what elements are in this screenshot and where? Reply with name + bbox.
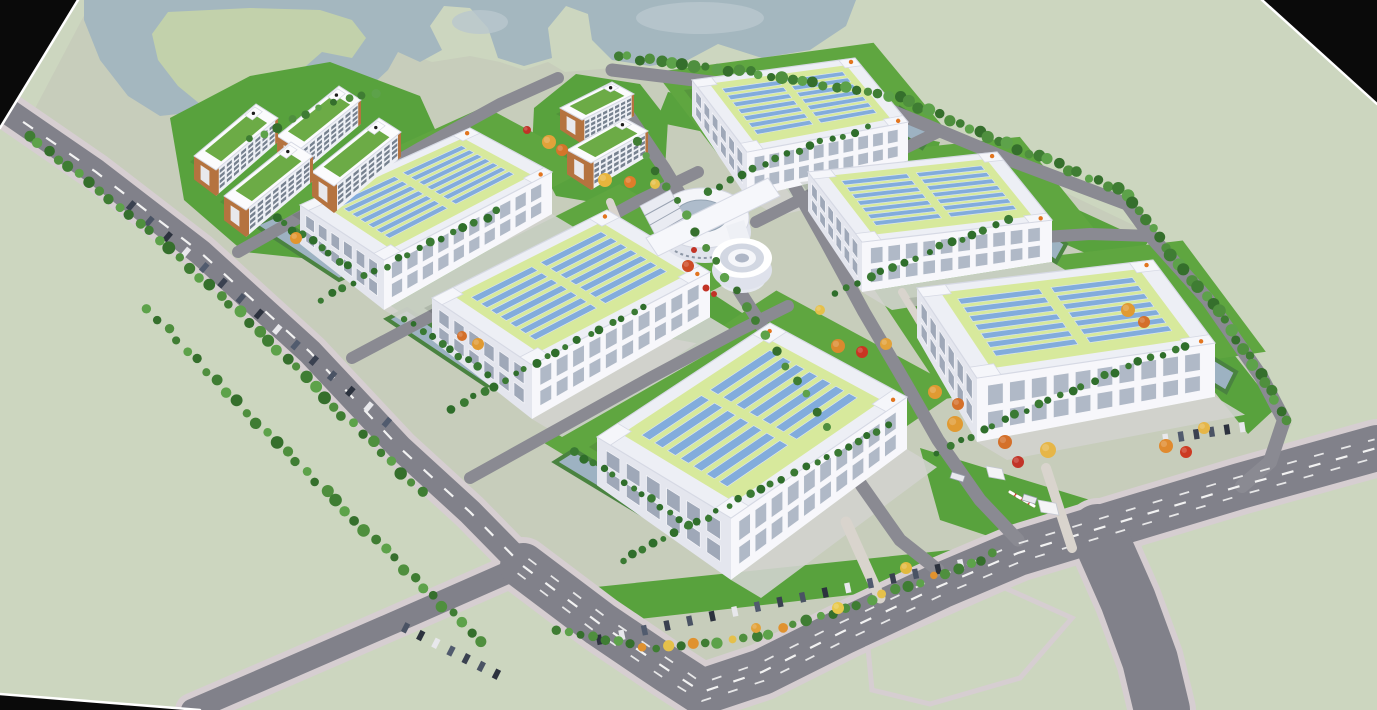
tree <box>325 250 332 257</box>
tree <box>1160 352 1167 359</box>
tree <box>877 589 886 598</box>
tree <box>438 236 445 243</box>
tree <box>890 584 900 594</box>
tree <box>601 465 608 472</box>
tree <box>303 467 312 476</box>
tree <box>1024 408 1030 414</box>
tree <box>103 194 113 204</box>
tree <box>292 362 300 370</box>
tree <box>262 335 274 347</box>
tree <box>336 411 346 421</box>
tree <box>328 289 336 297</box>
tree <box>727 503 733 509</box>
tree <box>864 88 872 96</box>
tree <box>387 456 396 465</box>
tree <box>1181 342 1190 351</box>
tree <box>756 485 765 494</box>
tree <box>492 207 500 215</box>
tree <box>552 626 561 635</box>
tree <box>900 259 908 267</box>
tree <box>867 595 877 605</box>
tree <box>766 480 773 487</box>
tree <box>417 245 423 251</box>
tree <box>956 119 965 128</box>
tree <box>136 219 146 229</box>
tree <box>767 73 775 81</box>
tree <box>489 383 498 392</box>
tree <box>271 436 284 449</box>
tree <box>863 432 870 439</box>
tree <box>1149 224 1157 232</box>
tree <box>751 316 760 325</box>
tree <box>418 583 428 593</box>
industrial-park-aerial-view <box>0 0 1377 710</box>
tree <box>720 273 729 282</box>
tree <box>656 56 668 68</box>
tree <box>394 467 406 479</box>
tree <box>912 103 923 114</box>
tree <box>95 186 104 195</box>
roof-accent <box>891 398 895 402</box>
tree <box>290 457 299 466</box>
tree <box>631 309 638 316</box>
tree <box>651 167 660 176</box>
tree <box>338 284 346 292</box>
tree <box>470 219 478 227</box>
tree <box>344 261 352 269</box>
tree <box>693 518 701 526</box>
tree <box>1035 400 1044 409</box>
tree <box>484 371 491 378</box>
tree <box>372 89 381 98</box>
tree <box>301 110 310 119</box>
tree <box>1077 383 1084 390</box>
tree <box>1002 415 1009 422</box>
tree <box>254 326 266 338</box>
tree <box>867 272 876 281</box>
tree <box>676 58 688 70</box>
tree <box>754 70 763 79</box>
roof-accent <box>603 214 607 218</box>
tree <box>273 213 282 222</box>
tree <box>502 377 509 384</box>
tree <box>246 135 253 142</box>
tree <box>458 223 467 232</box>
tree <box>601 635 611 645</box>
tree <box>688 638 699 649</box>
tree <box>371 535 381 545</box>
tree <box>1213 304 1226 317</box>
tree <box>968 434 975 441</box>
tree <box>481 387 490 396</box>
tree <box>283 354 294 365</box>
tree <box>903 95 915 107</box>
tree <box>712 257 720 265</box>
drum-ring <box>735 254 749 263</box>
tree <box>289 115 297 123</box>
tree <box>202 368 210 376</box>
tree <box>675 516 682 523</box>
tree <box>450 609 458 617</box>
tree <box>723 66 734 77</box>
tree <box>852 86 861 95</box>
tree <box>690 227 699 236</box>
tree <box>628 550 637 559</box>
tree <box>621 479 628 486</box>
tree <box>742 302 752 312</box>
tree <box>682 210 691 219</box>
tree <box>545 353 551 359</box>
tree <box>450 229 456 235</box>
tree <box>1001 137 1013 149</box>
tree <box>635 56 645 66</box>
roof-accent <box>538 172 542 176</box>
tree <box>595 326 604 335</box>
tree <box>771 155 779 163</box>
tree <box>1191 280 1204 293</box>
tree <box>662 182 671 191</box>
tree <box>318 298 324 304</box>
tree <box>360 272 367 279</box>
tree <box>1269 395 1279 405</box>
tree <box>935 242 943 250</box>
tree <box>235 305 247 317</box>
roof-accent <box>1199 339 1203 343</box>
tree <box>377 449 385 457</box>
site-plan-rendering <box>0 0 1377 710</box>
tree <box>165 324 174 333</box>
tree <box>551 349 560 358</box>
tree <box>1282 415 1292 425</box>
tree <box>411 573 420 582</box>
tree <box>310 478 319 487</box>
tree <box>797 76 807 86</box>
tree <box>243 409 251 417</box>
tree <box>684 521 693 530</box>
tree <box>823 423 831 431</box>
tree <box>854 280 861 287</box>
tree <box>940 569 950 579</box>
tree <box>62 161 73 172</box>
tree <box>701 62 709 70</box>
tree <box>781 363 789 371</box>
tree <box>656 504 663 511</box>
tree <box>802 463 810 471</box>
tree <box>263 428 272 437</box>
tree <box>716 183 723 190</box>
tree <box>609 319 616 326</box>
tree <box>817 138 823 144</box>
tree <box>855 438 863 446</box>
tree <box>565 628 573 636</box>
tree <box>579 455 588 464</box>
tree <box>261 131 269 139</box>
tree <box>1057 392 1064 399</box>
tree <box>609 471 615 477</box>
tree <box>318 391 331 404</box>
tree <box>738 171 747 180</box>
tree <box>319 244 326 251</box>
tree <box>309 236 318 245</box>
tree <box>300 371 312 383</box>
tree <box>777 476 785 484</box>
tree <box>1041 153 1052 164</box>
tree <box>625 639 634 648</box>
tree <box>1103 181 1113 191</box>
tree <box>702 244 710 252</box>
tree <box>967 559 976 568</box>
tree <box>734 65 745 76</box>
tree <box>800 615 812 627</box>
tree <box>429 333 436 340</box>
tree <box>339 506 349 516</box>
tree <box>184 263 195 274</box>
roof-accent <box>465 131 469 135</box>
tree <box>407 478 415 486</box>
tree <box>944 115 955 126</box>
tree <box>1054 158 1065 169</box>
tree <box>562 344 568 350</box>
tree <box>903 581 914 592</box>
tree <box>454 353 462 361</box>
tree <box>824 454 830 460</box>
tree <box>992 221 999 228</box>
tree <box>351 281 357 287</box>
tree <box>172 336 180 344</box>
tree <box>401 316 407 322</box>
tree <box>649 539 658 548</box>
tree <box>1231 335 1240 344</box>
tree <box>390 553 398 561</box>
tree <box>674 197 681 204</box>
roof-accent <box>849 60 853 64</box>
tree <box>712 64 723 75</box>
tree <box>958 437 964 443</box>
tree <box>83 177 94 188</box>
tree <box>418 487 428 497</box>
tree <box>982 131 994 143</box>
tree <box>968 231 977 240</box>
tree <box>1225 324 1237 336</box>
flower-bush <box>703 285 710 292</box>
tree <box>283 446 293 456</box>
tree <box>1140 214 1151 225</box>
tree <box>979 227 987 235</box>
tree <box>980 425 988 433</box>
tree <box>398 564 409 575</box>
tree <box>711 637 722 648</box>
tree <box>346 94 354 102</box>
tree <box>784 150 791 157</box>
tree <box>796 148 803 155</box>
tree <box>124 210 134 220</box>
tree <box>521 366 527 372</box>
tree <box>660 536 666 542</box>
tree <box>281 220 287 226</box>
tree <box>588 331 594 337</box>
tree <box>789 621 796 628</box>
tree <box>368 436 379 447</box>
tree <box>840 134 846 140</box>
tree <box>439 340 447 348</box>
tree <box>652 645 660 653</box>
roof-accent <box>695 272 699 276</box>
tree <box>589 459 596 466</box>
tree <box>953 564 964 575</box>
tree <box>349 516 359 526</box>
tree <box>640 304 646 310</box>
tree <box>1012 144 1023 155</box>
tree <box>989 423 995 429</box>
tree <box>1147 354 1154 361</box>
tree <box>793 376 802 385</box>
tree <box>813 408 822 417</box>
tree <box>851 129 859 137</box>
tree <box>930 572 938 580</box>
tree <box>1172 346 1180 354</box>
tree <box>746 489 755 498</box>
tree <box>244 318 254 328</box>
tree <box>761 330 771 340</box>
flower-bush <box>691 247 697 253</box>
tree <box>470 393 476 399</box>
tree <box>733 287 741 295</box>
tree <box>788 75 798 85</box>
tree <box>1164 248 1177 261</box>
tree <box>44 146 55 157</box>
tree <box>775 71 788 84</box>
tree <box>231 394 243 406</box>
tree <box>1004 215 1013 224</box>
tree <box>701 639 710 648</box>
tree <box>1100 371 1108 379</box>
tree <box>336 258 344 266</box>
tree <box>155 236 165 246</box>
tree <box>250 418 261 429</box>
tree <box>729 636 737 644</box>
tree <box>790 469 798 477</box>
tree <box>349 418 358 427</box>
tree <box>1085 175 1093 183</box>
tree <box>426 237 435 246</box>
tree <box>1177 263 1189 275</box>
tree <box>618 316 625 323</box>
tree <box>203 279 215 291</box>
tree <box>734 495 742 503</box>
tree <box>371 268 378 275</box>
tree <box>1135 206 1144 215</box>
tree <box>532 359 541 368</box>
tree <box>647 494 656 503</box>
tree <box>912 256 918 262</box>
tree <box>705 515 712 522</box>
tree <box>817 612 825 620</box>
tree <box>1133 357 1142 366</box>
tree <box>329 403 338 412</box>
tree <box>614 636 624 646</box>
tree <box>395 254 403 262</box>
tree <box>573 336 581 344</box>
tree <box>271 345 282 356</box>
tree <box>923 103 936 116</box>
tree <box>1246 352 1254 360</box>
tree <box>1126 197 1138 209</box>
tree <box>830 136 836 142</box>
tree <box>642 152 649 159</box>
tree <box>815 459 821 465</box>
tree <box>843 284 850 291</box>
tree <box>192 354 201 363</box>
tree <box>633 137 642 146</box>
tree <box>807 76 818 87</box>
tree <box>473 362 482 371</box>
tree <box>749 165 757 173</box>
tree <box>310 381 322 393</box>
tree <box>429 591 438 600</box>
tree <box>381 544 391 554</box>
roof-accent <box>1144 263 1148 267</box>
tree <box>840 81 851 92</box>
tree <box>713 508 719 514</box>
tree <box>638 643 647 652</box>
tree <box>330 99 337 106</box>
tree <box>357 524 370 537</box>
tree <box>570 447 579 456</box>
tree <box>620 558 627 565</box>
tree <box>818 81 827 90</box>
roof-accent <box>1038 216 1042 220</box>
tree <box>577 631 585 639</box>
tree <box>357 92 365 100</box>
tree <box>763 630 773 640</box>
tree <box>144 226 153 235</box>
tree <box>457 617 468 628</box>
tree <box>960 237 966 243</box>
tree <box>704 188 712 196</box>
tree <box>670 528 679 537</box>
tree <box>631 485 637 491</box>
tree <box>1125 363 1132 370</box>
tree <box>916 579 924 587</box>
tree <box>1091 377 1099 385</box>
tree <box>224 300 233 309</box>
tree <box>1246 359 1258 371</box>
tree <box>1277 407 1287 417</box>
tree <box>75 169 84 178</box>
tree <box>663 640 674 651</box>
tree <box>645 54 655 64</box>
tree <box>778 623 788 633</box>
tree <box>176 253 184 261</box>
tree <box>935 109 945 119</box>
tree <box>404 252 410 258</box>
tree <box>965 124 974 133</box>
tree <box>221 387 232 398</box>
tree <box>460 398 469 407</box>
tree <box>483 214 492 223</box>
tree <box>739 634 748 643</box>
tree <box>1025 150 1034 159</box>
tree <box>329 494 342 507</box>
tree <box>667 510 673 516</box>
tree <box>436 601 448 613</box>
tree <box>513 370 519 376</box>
tree <box>272 123 282 133</box>
tree <box>54 156 63 165</box>
tree <box>1266 385 1277 396</box>
tree <box>183 347 192 356</box>
tree <box>873 89 883 99</box>
